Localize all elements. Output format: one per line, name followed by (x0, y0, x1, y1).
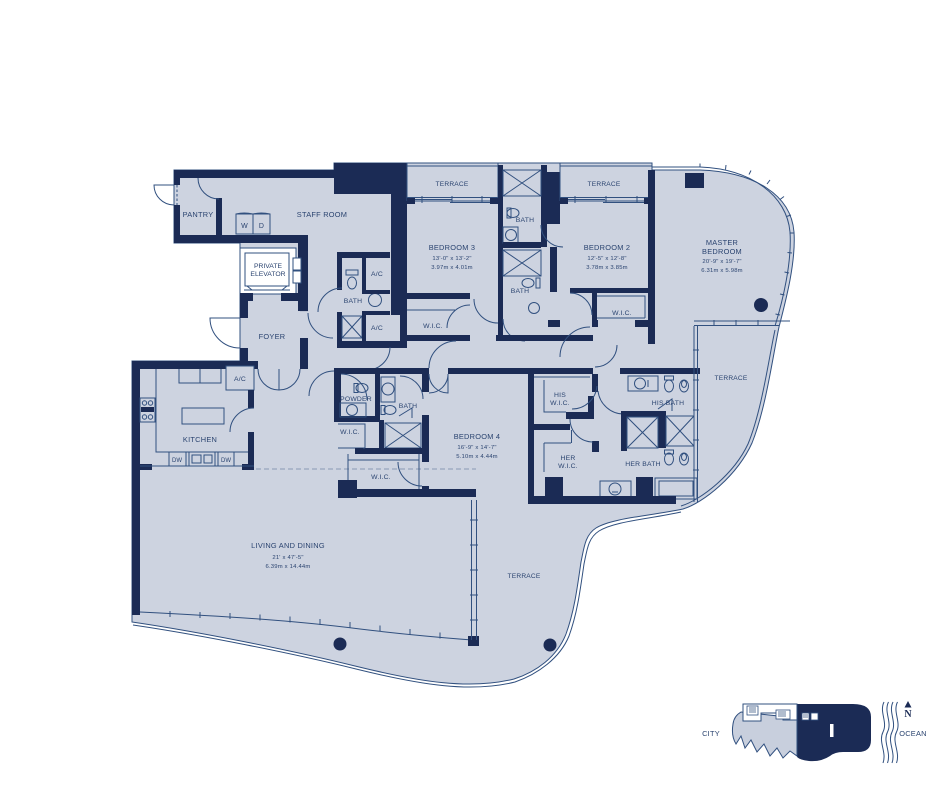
svg-text:HER BATH: HER BATH (625, 461, 660, 468)
svg-text:MASTER: MASTER (706, 238, 738, 247)
svg-text:W: W (241, 223, 248, 230)
svg-text:STAFF ROOM: STAFF ROOM (297, 210, 347, 219)
svg-text:OCEAN: OCEAN (899, 729, 927, 738)
svg-text:POWDER: POWDER (340, 396, 372, 403)
svg-text:BEDROOM 3: BEDROOM 3 (429, 243, 476, 252)
svg-text:PANTRY: PANTRY (183, 210, 214, 219)
svg-text:LIVING AND DINING: LIVING AND DINING (251, 541, 325, 550)
svg-text:12'-5" x 12'-8": 12'-5" x 12'-8" (587, 256, 626, 262)
svg-text:BATH: BATH (511, 288, 529, 295)
svg-text:BEDROOM: BEDROOM (702, 247, 742, 256)
svg-text:W.I.C.: W.I.C. (550, 400, 570, 407)
svg-text:BATH: BATH (516, 217, 534, 224)
svg-text:KITCHEN: KITCHEN (183, 435, 217, 444)
svg-text:N: N (904, 709, 912, 720)
svg-text:W.I.C.: W.I.C. (612, 310, 632, 317)
svg-text:6.39m x 14.44m: 6.39m x 14.44m (265, 564, 310, 570)
svg-text:W.I.C.: W.I.C. (340, 429, 360, 436)
svg-text:BATH: BATH (344, 298, 362, 305)
svg-text:W.I.C.: W.I.C. (423, 323, 443, 330)
svg-text:16'-9" x 14'-7": 16'-9" x 14'-7" (457, 445, 496, 451)
svg-text:20'-9" x 19'-7": 20'-9" x 19'-7" (702, 259, 741, 265)
svg-text:TERRACE: TERRACE (715, 375, 748, 382)
svg-text:TERRACE: TERRACE (436, 181, 469, 188)
svg-text:21' x 47'-5": 21' x 47'-5" (272, 555, 303, 561)
svg-text:3.78m x 3.85m: 3.78m x 3.85m (586, 265, 628, 271)
svg-text:13'-0" x 13'-2": 13'-0" x 13'-2" (432, 256, 471, 262)
svg-text:W.I.C.: W.I.C. (558, 463, 578, 470)
svg-text:CITY: CITY (702, 729, 720, 738)
svg-text:TERRACE: TERRACE (508, 573, 541, 580)
svg-text:5.10m x 4.44m: 5.10m x 4.44m (456, 454, 498, 460)
svg-text:HER: HER (561, 455, 576, 462)
svg-text:BEDROOM 4: BEDROOM 4 (454, 432, 501, 441)
svg-text:ELEVATOR: ELEVATOR (250, 271, 285, 278)
svg-text:D: D (259, 223, 264, 230)
svg-text:W.I.C.: W.I.C. (371, 474, 391, 481)
svg-text:A/C: A/C (371, 271, 383, 278)
svg-text:BEDROOM 2: BEDROOM 2 (584, 243, 631, 252)
svg-text:A/C: A/C (371, 325, 383, 332)
svg-text:FOYER: FOYER (259, 332, 286, 341)
svg-text:BATH: BATH (399, 403, 417, 410)
svg-text:3.97m x 4.01m: 3.97m x 4.01m (431, 265, 473, 271)
svg-text:PRIVATE: PRIVATE (254, 263, 283, 270)
svg-text:HIS: HIS (554, 392, 566, 399)
svg-text:6.31m x 5.98m: 6.31m x 5.98m (701, 268, 743, 274)
svg-text:HIS BATH: HIS BATH (652, 400, 684, 407)
svg-text:DW: DW (221, 458, 231, 464)
svg-text:A/C: A/C (234, 376, 246, 383)
svg-text:TERRACE: TERRACE (588, 181, 621, 188)
svg-text:DW: DW (172, 458, 182, 464)
